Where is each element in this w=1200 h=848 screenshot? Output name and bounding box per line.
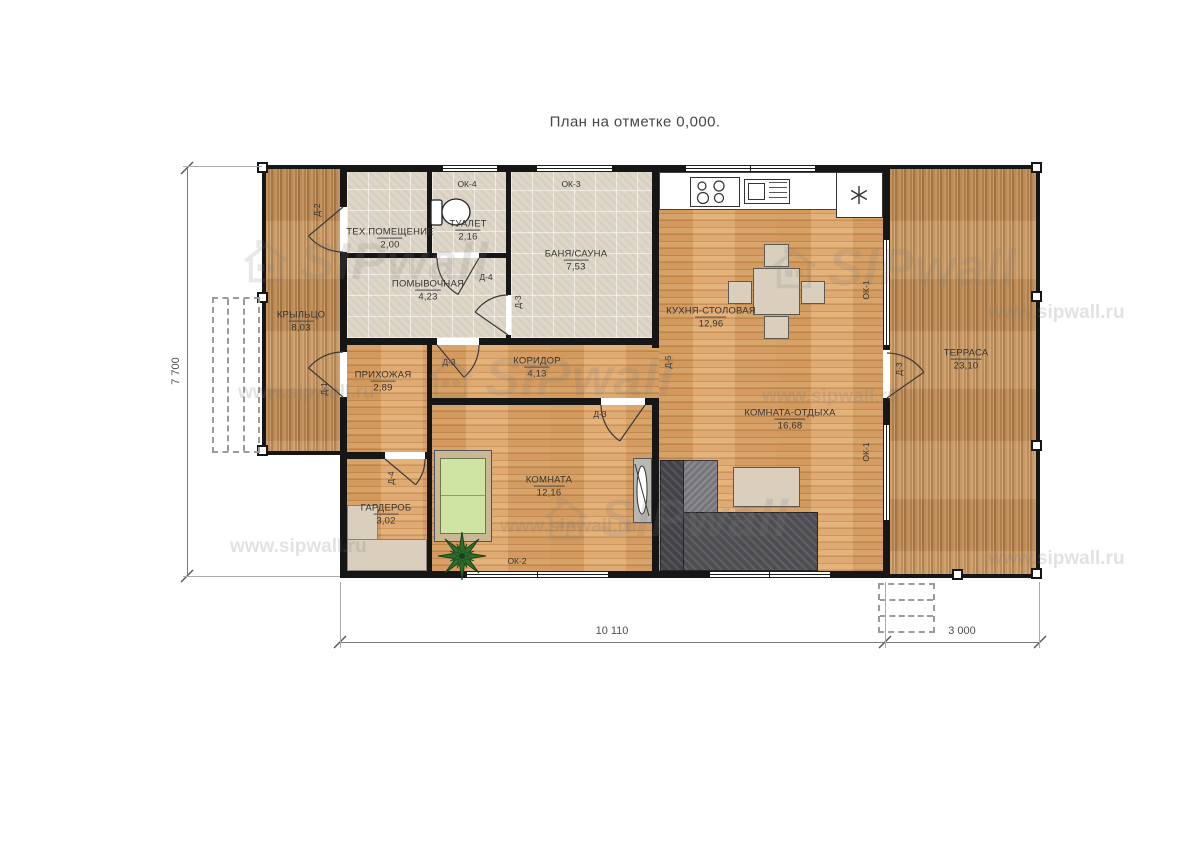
room-label-porch: КРЫЛЬЦО 8,03 — [277, 310, 325, 335]
window-ok1-kitchen — [883, 240, 890, 345]
extension-line — [183, 166, 262, 167]
room-area: 16,68 — [775, 419, 806, 432]
room-area: 12,96 — [696, 317, 727, 330]
corner-post — [952, 569, 963, 580]
room-name: ТЕРРАСА — [944, 348, 989, 359]
room-name: БАНЯ/САУНА — [545, 249, 608, 260]
bed-mattress — [440, 458, 486, 534]
dimension-line-horizontal — [340, 642, 1040, 643]
door-label-d2: Д-2 — [312, 203, 322, 216]
door-opening — [437, 338, 479, 345]
room-label-kitchen: КУХНЯ-СТОЛОВАЯ 12,96 — [666, 306, 756, 331]
porch-step-line — [227, 299, 229, 451]
terrace-step-line — [880, 615, 933, 617]
room-label-wardrobe: ГАРДЕРОБ 3,02 — [361, 503, 412, 528]
corner-post — [1031, 291, 1042, 302]
extension-line — [1039, 582, 1040, 648]
sink-drainboard — [769, 182, 787, 202]
fridge — [836, 172, 883, 218]
door-opening — [506, 295, 511, 335]
room-label-sauna: БАНЯ/САУНА 7,53 — [545, 249, 608, 274]
dimension-width-terrace: 3 000 — [948, 625, 976, 637]
dimension-width-main: 10 110 — [596, 625, 629, 637]
door-label-d1: Д-1 — [319, 382, 329, 395]
porch-step-line — [243, 299, 245, 451]
room-label-toilet: ТУАЛЕТ 2,16 — [449, 219, 486, 244]
extension-line — [183, 576, 340, 577]
room-label-terrace: ТЕРРАСА 23,10 — [944, 348, 989, 373]
room-floor-hall — [347, 345, 427, 452]
room-area: 3,02 — [373, 514, 398, 527]
sink-bowl — [748, 183, 765, 200]
room-area: 7,53 — [563, 260, 588, 273]
wall-segment — [652, 405, 659, 571]
room-area: 2,00 — [377, 238, 402, 251]
room-area: 2,16 — [455, 230, 480, 243]
room-area: 4,13 — [524, 367, 549, 380]
terrace-steps — [878, 583, 935, 633]
room-label-corridor: КОРИДОР 4,13 — [513, 356, 561, 381]
sofa-arm — [660, 460, 684, 571]
corner-post — [1031, 162, 1042, 173]
door-label-d3-terrace: Д-3 — [894, 362, 904, 375]
wall-segment — [890, 574, 1040, 578]
room-label-lounge: КОМНАТА-ОТДЫХА 16,68 — [744, 408, 835, 433]
dining-chair — [801, 281, 825, 304]
door-label-d4-toilet: Д-4 — [479, 272, 492, 282]
room-name: КОМНАТА-ОТДЫХА — [744, 408, 835, 419]
window-label-ok2: ОК-2 — [507, 556, 526, 566]
dining-chair — [764, 316, 789, 339]
window-lounge-bottom — [710, 571, 830, 578]
window-ok4 — [443, 165, 497, 172]
room-name: КОРИДОР — [513, 356, 561, 367]
wall-segment — [262, 165, 266, 455]
room-name: КОМНАТА — [526, 475, 572, 486]
bed-seam — [441, 495, 485, 496]
door-opening — [883, 350, 890, 398]
room-name: КРЫЛЬЦО — [277, 310, 325, 321]
room-area: 2,89 — [370, 381, 395, 394]
wall-segment — [262, 451, 340, 455]
wall-segment — [347, 253, 506, 258]
porch-steps — [212, 297, 260, 453]
dimension-line-vertical — [187, 168, 188, 576]
window-label-ok1-lounge: ОК-1 — [861, 442, 871, 461]
wall-segment — [1036, 165, 1040, 578]
plan-title: План на отметке 0,000. — [550, 114, 721, 131]
wall-segment — [262, 165, 340, 169]
door-label-d3-sauna: Д-3 — [513, 295, 523, 308]
room-name: ГАРДЕРОБ — [361, 503, 412, 514]
door-opening — [340, 352, 347, 397]
stove — [690, 177, 740, 207]
extension-line — [885, 582, 886, 648]
coffee-table — [733, 467, 800, 507]
extension-line — [340, 582, 341, 648]
dining-table — [753, 268, 800, 315]
room-label-washroom: ПОМЫВОЧНАЯ 4,23 — [392, 279, 464, 304]
room-label-tech: ТЕХ.ПОМЕЩЕНИЕ 2,00 — [346, 227, 433, 252]
dining-chair — [728, 281, 752, 304]
window-ok3 — [537, 165, 612, 172]
corner-post — [257, 162, 268, 173]
dresser-mirror — [633, 458, 652, 523]
terrace-step-line — [880, 599, 933, 601]
door-label-d3-hall: Д-3 — [442, 357, 455, 367]
room-name: ПОМЫВОЧНАЯ — [392, 279, 464, 290]
room-name: КУХНЯ-СТОЛОВАЯ — [666, 306, 756, 317]
room-area: 8,03 — [288, 321, 313, 334]
window-label-ok4: ОК-4 — [457, 179, 476, 189]
door-opening — [601, 398, 645, 405]
door-label-d4-wardrobe: Д-4 — [386, 471, 396, 484]
dining-chair — [764, 244, 789, 267]
wardrobe-shelf — [347, 539, 427, 571]
wall-segment — [890, 165, 1040, 169]
window-label-ok3: ОК-3 — [561, 179, 580, 189]
window-ok1-lounge — [883, 425, 890, 520]
dimension-height: 7 700 — [170, 357, 182, 385]
wall-segment — [652, 172, 659, 348]
corner-post — [1031, 440, 1042, 451]
wall-segment — [347, 338, 659, 345]
room-name: ТУАЛЕТ — [449, 219, 486, 230]
room-label-bedroom: КОМНАТА 12,16 — [526, 475, 572, 500]
room-name: ПРИХОЖАЯ — [355, 370, 412, 381]
door-opening — [385, 452, 425, 459]
room-label-hall: ПРИХОЖАЯ 2,89 — [355, 370, 412, 395]
door-label-d5: Д-5 — [663, 355, 673, 368]
door-label-d3-bedroom: Д-3 — [593, 409, 606, 419]
window-mullion — [537, 571, 538, 578]
window-mullion — [769, 571, 770, 578]
floor-plan-canvas: План на отметке 0,000. — [0, 0, 1200, 848]
room-area: 12,16 — [534, 486, 565, 499]
wall-segment — [427, 345, 432, 571]
room-name: ТЕХ.ПОМЕЩЕНИЕ — [346, 227, 433, 238]
door-opening — [437, 253, 479, 258]
room-area: 4,23 — [415, 290, 440, 303]
room-area: 23,10 — [951, 359, 982, 372]
window-mullion — [750, 165, 751, 172]
corner-post — [1031, 568, 1042, 579]
window-label-ok1-kitchen: ОК-1 — [861, 280, 871, 299]
